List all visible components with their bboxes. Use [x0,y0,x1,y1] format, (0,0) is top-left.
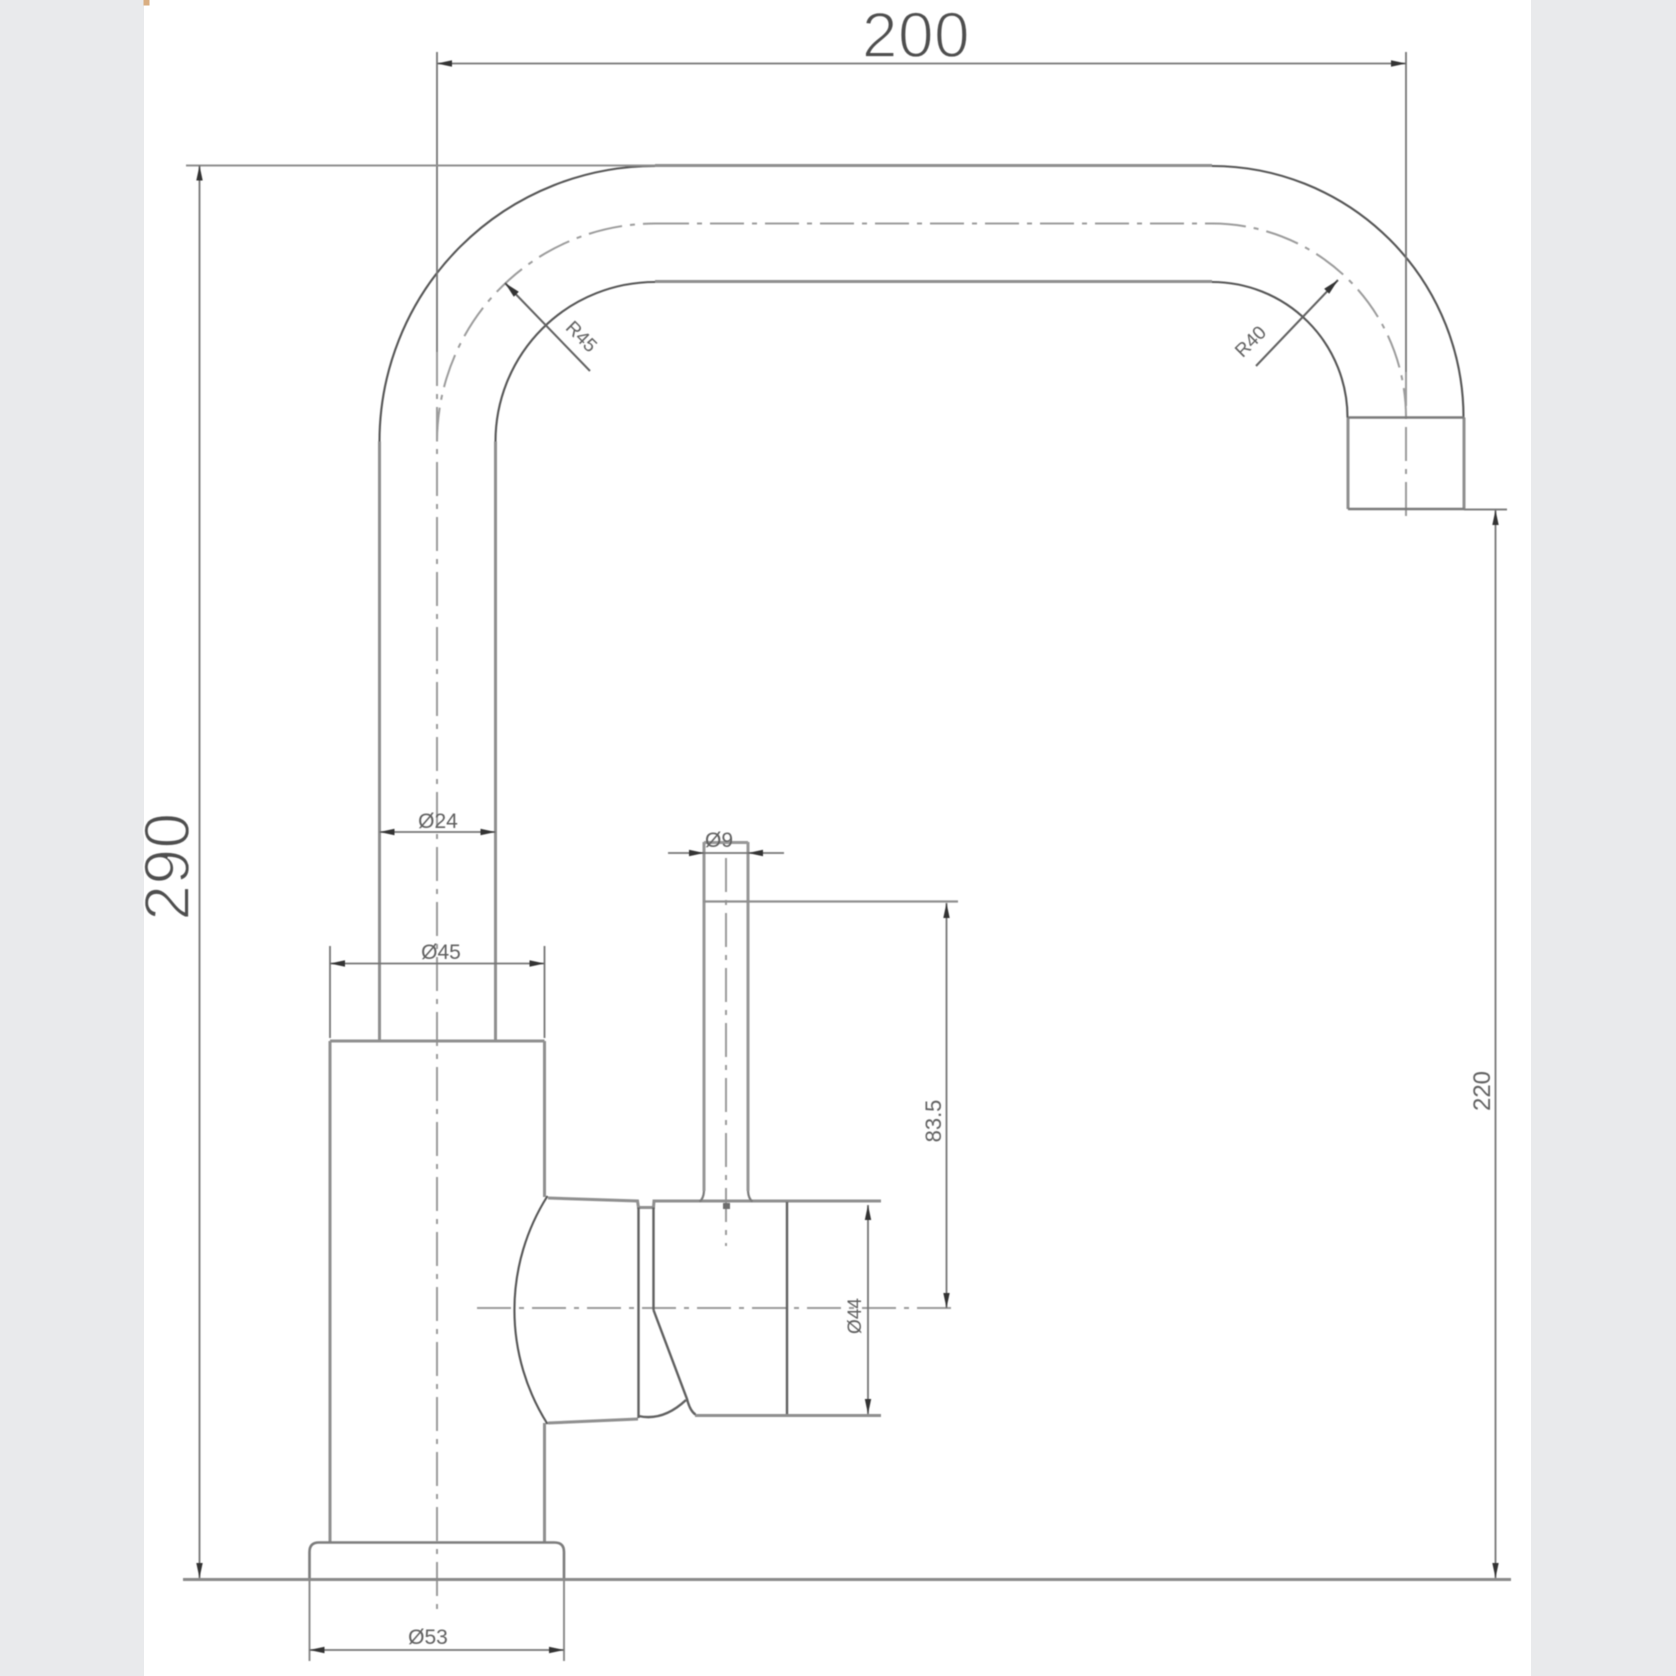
svg-text:200: 200 [862,0,970,71]
svg-text:290: 290 [131,812,203,920]
svg-text:Ø45: Ø45 [421,941,461,964]
svg-text:Ø24: Ø24 [418,810,458,833]
svg-text:Ø9: Ø9 [705,829,733,852]
svg-text:Ø44: Ø44 [845,1298,866,1334]
svg-text:83.5: 83.5 [921,1100,946,1143]
svg-text:Ø53: Ø53 [408,1626,448,1649]
svg-text:220: 220 [1469,1071,1496,1111]
